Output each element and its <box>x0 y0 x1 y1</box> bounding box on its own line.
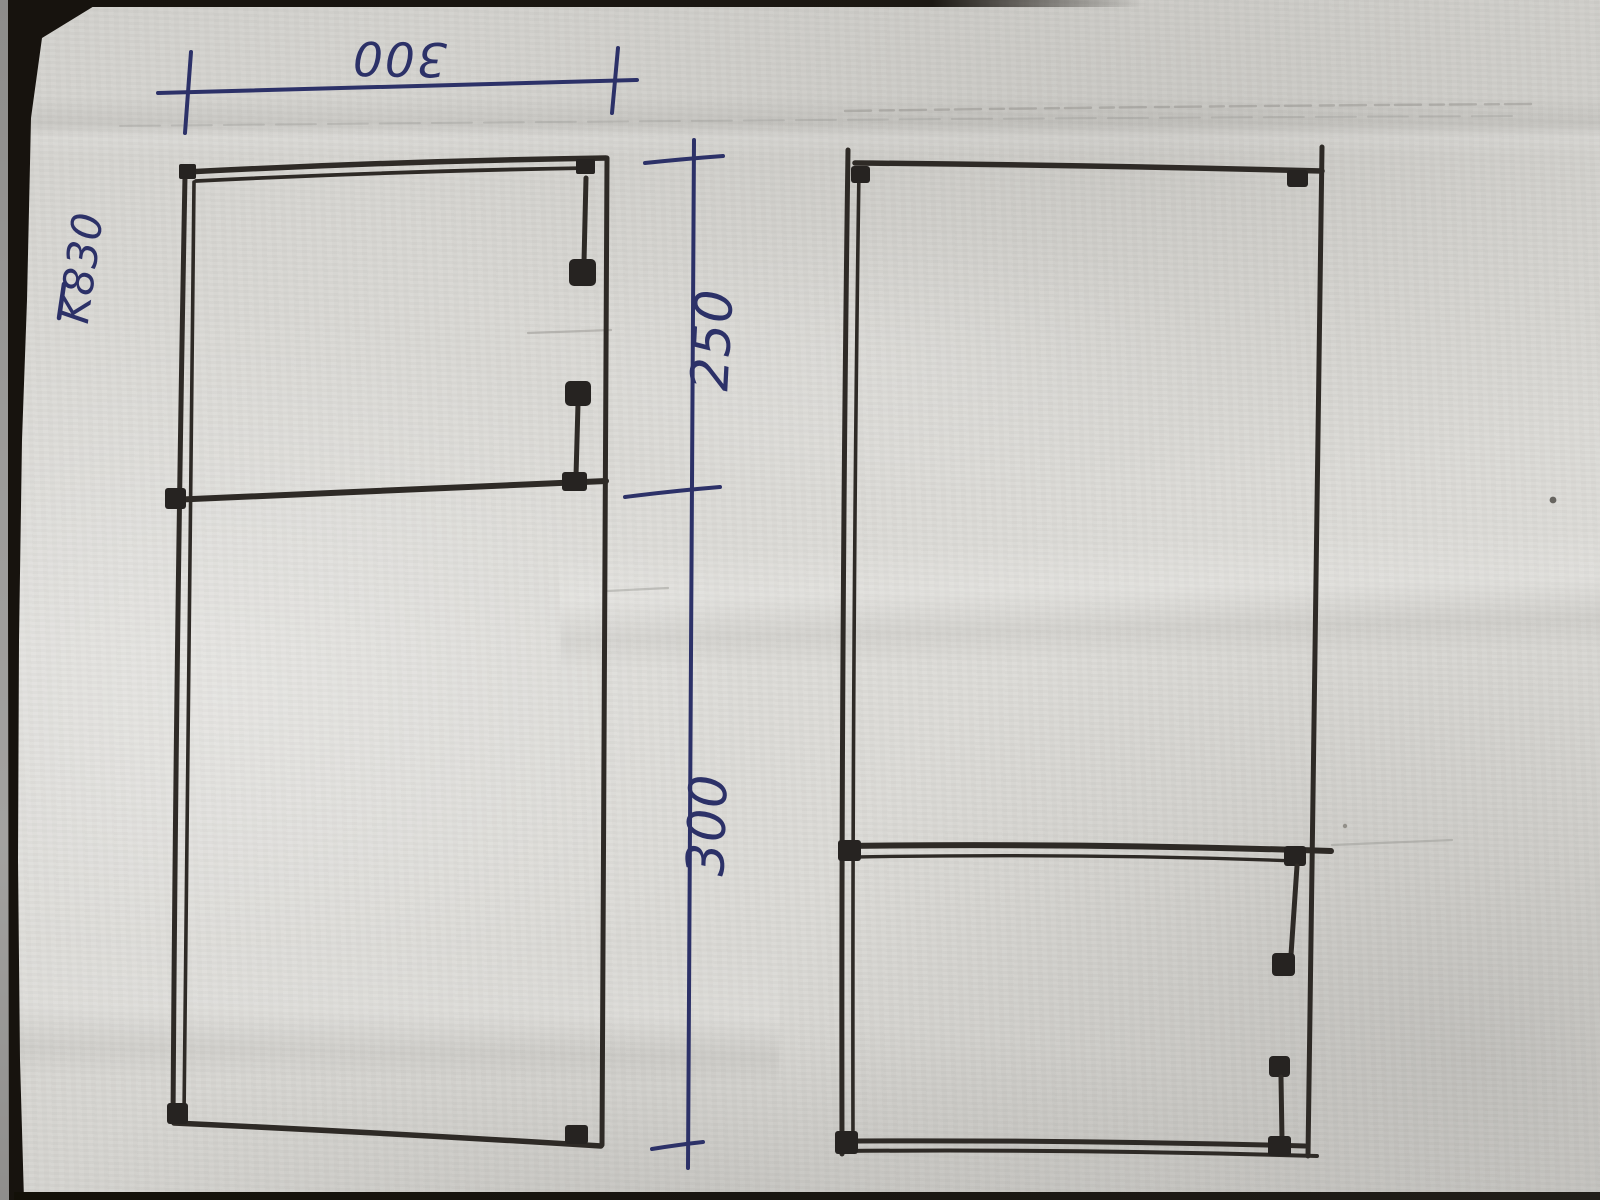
photo-of-hand-drawn-sketch: 300 250 300 K830 <box>0 0 1600 1200</box>
dim-tick <box>625 487 720 497</box>
dim-lower-height-label: 300 <box>676 773 740 877</box>
dimension-annotations: 300 250 300 K830 <box>49 30 746 1168</box>
dim-tick <box>652 1142 703 1149</box>
dim-upper-height-label: 250 <box>680 287 745 392</box>
pencil-guidelines <box>120 104 1556 845</box>
part-code-label: K830 <box>49 209 113 326</box>
dim-tick <box>645 156 723 163</box>
left-panel-sketch <box>165 158 607 1146</box>
right-panel-sketch <box>835 147 1331 1156</box>
dim-top-width-label: 300 <box>351 30 448 87</box>
sketch-drawing: 300 250 300 K830 <box>0 0 1600 1200</box>
